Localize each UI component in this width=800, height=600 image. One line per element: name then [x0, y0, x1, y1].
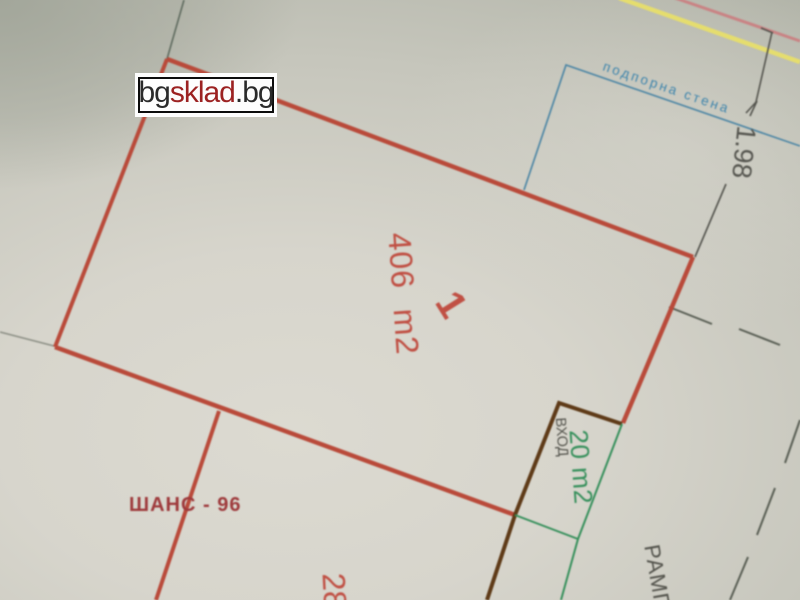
svg-text:РАМПА: РАМПА — [639, 543, 678, 600]
svg-text:1.98: 1.98 — [726, 124, 761, 179]
svg-text:подпорна стена: подпорна стена — [601, 59, 732, 117]
svg-text:1: 1 — [427, 284, 476, 326]
svg-text:406 m2: 406 m2 — [381, 231, 425, 356]
svg-text:28: 28 — [316, 572, 354, 600]
svg-text:ВХОД: ВХОД — [552, 417, 571, 457]
svg-text:ШАНС - 96: ШАНС - 96 — [129, 494, 241, 516]
